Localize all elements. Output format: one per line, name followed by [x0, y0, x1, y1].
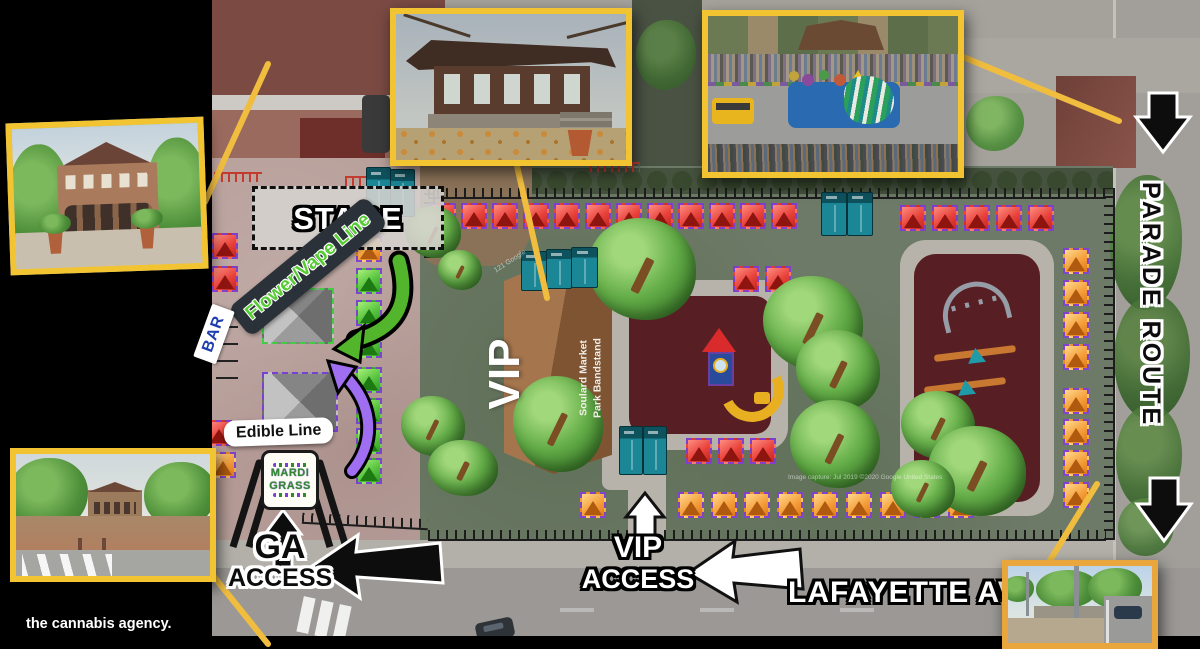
- car: [1114, 606, 1142, 619]
- ga-access-label: GA ACCESS: [228, 530, 332, 591]
- photo-lafayette-street-view: [1002, 560, 1158, 649]
- edible-line-label: Edible Line: [236, 422, 322, 442]
- leafy-ground: [396, 128, 632, 166]
- parade-route-label: PARADE ROUTE: [1138, 182, 1163, 482]
- logo-line1: MARDI: [271, 468, 310, 480]
- bandstand-caption: Soulard Market Park Bandstand: [577, 338, 604, 418]
- curb-line: [1106, 600, 1109, 649]
- parade-float: [788, 68, 900, 132]
- bollard: [102, 538, 106, 550]
- street: [1104, 596, 1158, 649]
- pavilion-windows: [444, 74, 580, 104]
- mardi-grass-logo: MARDI GRASS: [261, 450, 319, 510]
- photo-soulard-market-building: [5, 117, 208, 276]
- parade-arrow-top: [1136, 93, 1190, 152]
- logo-decoration: [273, 493, 307, 497]
- vip-left-arrow: [688, 541, 803, 602]
- edible-line-banner: Edible Line: [224, 417, 334, 447]
- logo-line2: GRASS: [269, 481, 311, 493]
- vip-access-label: VIP ACCESS: [578, 533, 698, 593]
- purple-curved-arrow: [328, 361, 368, 471]
- green-curved-arrow: [334, 261, 403, 362]
- photo-park-bandstand: [390, 8, 632, 166]
- crosswalk: [22, 554, 112, 582]
- parade-arrow-bottom: [1137, 478, 1191, 541]
- agency-credit: the cannabis agency.: [26, 617, 172, 632]
- bandstand-caption-line1: Soulard Market: [577, 338, 591, 418]
- school-bus: [712, 98, 754, 124]
- plaza-path: [16, 516, 216, 550]
- utility-pole: [1026, 572, 1029, 616]
- photo-plaza-street-view: [10, 448, 216, 582]
- distant-building: [88, 490, 142, 516]
- plaza: [15, 226, 208, 275]
- vip-bandstand-label: VIP: [483, 339, 527, 410]
- bollard: [78, 538, 82, 550]
- bandstand-caption-line2: Park Bandstand: [591, 338, 605, 418]
- foreground-crowd: [708, 144, 964, 178]
- photo-parade-crowd: [702, 10, 964, 178]
- event-map-canvas: STAGE Flower/Vape Line BAR Edible Line M…: [0, 0, 1200, 649]
